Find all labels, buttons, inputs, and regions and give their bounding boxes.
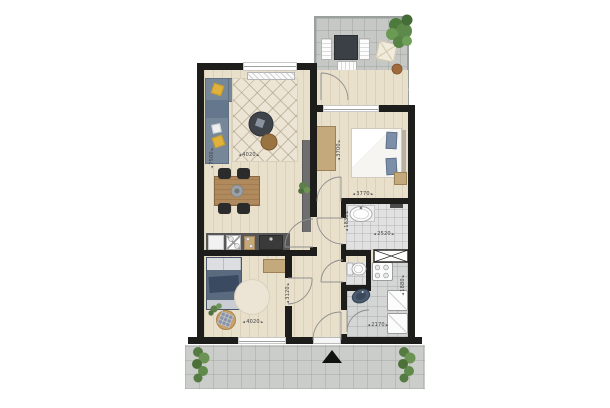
entrance-arrow-icon [322, 350, 342, 363]
gallery-plant-right [398, 347, 416, 383]
washbasin [350, 207, 372, 222]
door-arc-balcony [321, 73, 348, 100]
dim-living-width: 4020 [229, 152, 269, 158]
dim-living-depth: 7500 [209, 138, 215, 178]
plan-overlay [0, 0, 610, 408]
dim-bedroom2-width: 4020 [233, 319, 273, 325]
door-arc-front [313, 312, 341, 340]
door-arc-wc [321, 260, 343, 282]
balcony-plant [386, 15, 413, 49]
balcony-side-pot [392, 64, 402, 74]
gallery-plant-left [192, 347, 210, 383]
dim-utility-depth: 1880 [400, 265, 406, 305]
living-plant [298, 182, 310, 194]
door-arc-bedroom2 [288, 278, 312, 304]
dim-bathroom-depth: 1830 [344, 201, 350, 241]
door-arc-living [285, 219, 313, 247]
utility-sink [350, 287, 372, 306]
dim-bathroom-width: 2520 [364, 231, 404, 237]
floor-plan-canvas: 4020 7500 3770 3700 2520 1830 2170 1880 … [0, 0, 610, 408]
ottoman [261, 134, 277, 150]
door-arc-bathroom [317, 218, 343, 244]
boiler-dials [375, 265, 388, 278]
toilet [347, 263, 366, 275]
dining-centerpiece-inner [235, 189, 240, 194]
dim-bedroom-main-width: 3770 [343, 191, 383, 197]
dim-bedroom-main-depth: 3700 [336, 130, 342, 170]
shaft [374, 250, 408, 262]
stove-burners [229, 237, 253, 249]
bedroom2-plant [208, 303, 221, 315]
dim-utility-width: 2170 [358, 322, 398, 328]
kitchen-faucet [269, 237, 272, 240]
door-arc-utility [347, 310, 369, 332]
door-arc-bedroom-main [317, 177, 341, 201]
dim-bedroom2-depth: 3120 [285, 273, 291, 313]
